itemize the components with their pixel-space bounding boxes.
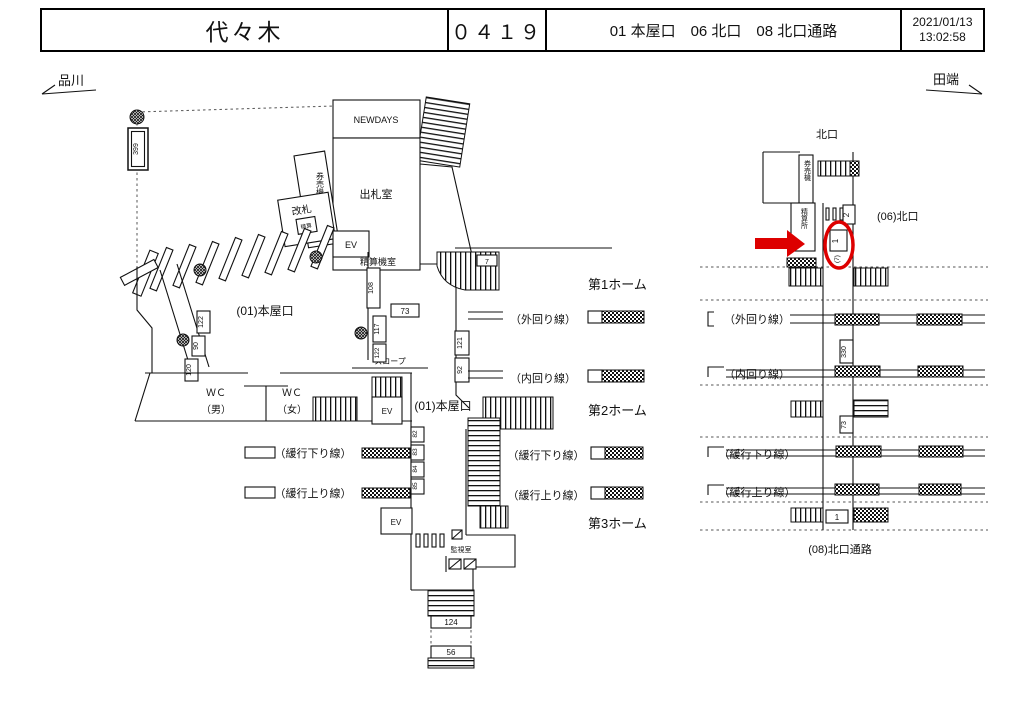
pillar-icon: [194, 264, 206, 276]
stairs-icon: [416, 97, 469, 167]
platform-bar: [836, 446, 881, 457]
pos-1: 1: [831, 238, 840, 243]
direction-right: 田端: [926, 72, 982, 94]
stairs-icon: [428, 590, 474, 616]
platform-bar: [919, 446, 963, 457]
pos-1b: 1: [835, 513, 840, 522]
pillar-icon: [177, 334, 189, 346]
elevator-2-label: EV: [382, 407, 393, 416]
building-right-wall: [420, 164, 474, 264]
platform1-label: 第1ホーム: [588, 277, 647, 292]
stairs-icon: [480, 506, 508, 528]
north-exit-label: 北口: [816, 128, 838, 141]
local-up-label-center: （緩行上り線）: [508, 488, 585, 502]
main-floorplan: 399 NEWDAYS 出札室 精算機室 券売機 改札 精算 EV: [120, 97, 646, 668]
direction-left: 品川: [42, 73, 96, 94]
pos-122b: 122: [374, 347, 381, 358]
rail-stub: [468, 371, 503, 378]
platform-bar: [362, 488, 410, 498]
platform3-label: 第3ホーム: [588, 516, 647, 531]
pos-90: 90: [193, 342, 200, 350]
pos-330: 330: [841, 346, 848, 358]
pos-7: 7: [485, 259, 489, 266]
local-down-label-center: （緩行下り線）: [508, 448, 585, 462]
pos-92: 92: [457, 366, 464, 374]
platform2-label: 第2ホーム: [588, 403, 647, 418]
stairs-icon: [468, 418, 500, 506]
platform-bar: [919, 484, 961, 495]
platform-bar: [917, 314, 962, 325]
pos-82: 82: [412, 430, 419, 438]
pos-84: 84: [412, 465, 419, 473]
local-up-label-west: （緩行上り線）: [275, 486, 352, 500]
ticket-gate-row: [120, 225, 334, 296]
fare-machine-room-label: 精算機室: [360, 256, 396, 267]
platform-bar: [835, 314, 879, 325]
stairs-icon: [854, 400, 888, 417]
local-down-label-west: （緩行下り線）: [275, 446, 352, 460]
stairs-icon: [791, 401, 823, 417]
platform-bar: [918, 366, 963, 377]
shop-label: NEWDAYS: [354, 115, 399, 125]
stairs-icon: [791, 508, 823, 522]
fare-office-label: 精算所: [801, 207, 809, 230]
platform-bar-start: [588, 311, 602, 323]
wc-female-label: ＷＣ: [282, 388, 302, 399]
gate-row-end: [850, 161, 859, 176]
pos-121: 121: [457, 337, 464, 349]
pos-56: 56: [447, 648, 456, 657]
wc-male-label: ＷＣ: [206, 388, 226, 399]
exit-06-label: (06)北口: [877, 210, 919, 223]
stairs-icon: [372, 377, 402, 397]
gate-row-icon: [818, 161, 850, 176]
row-bracket: [708, 312, 714, 326]
pos-85: 85: [412, 482, 419, 490]
platform-bar: [835, 484, 879, 495]
pos-108: 108: [368, 282, 375, 294]
station-map-page: 代々木 ０４１９ 01 本屋口 06 北口 08 北口通路 2021/01/13…: [0, 0, 1024, 724]
outer-line-label: （外回り線）: [510, 312, 576, 326]
wc-walls: [135, 373, 412, 421]
wc-female-sub: （女）: [277, 403, 307, 416]
pos-120: 120: [186, 364, 193, 376]
exit-01-label-center: (01)本屋口: [414, 399, 471, 413]
pos-122a: 122: [198, 316, 205, 328]
stairs-icon: [428, 658, 474, 668]
platform-bar: [835, 366, 880, 377]
inner-line-label-right: （内回り線）: [724, 367, 790, 381]
platform-bar: [605, 447, 643, 459]
rail-stub: [468, 312, 503, 319]
pos-83: 83: [412, 448, 419, 456]
platform-bar-start: [245, 447, 275, 458]
platform-bar-start: [591, 487, 605, 499]
pillar-icon: [130, 110, 144, 124]
pos-73-right: 73: [841, 421, 848, 429]
outer-line-label-right: （外回り線）: [724, 312, 790, 326]
platform-bar-start: [588, 370, 602, 382]
row-bracket: [708, 367, 724, 377]
north-building-walls: [763, 152, 800, 203]
pillar-icon: [310, 251, 322, 263]
gate-ticks: [826, 208, 843, 220]
pos-399: 399: [133, 143, 140, 155]
left-station-label: 品川: [58, 73, 84, 88]
wc-male-sub: （男）: [201, 404, 231, 416]
pos-1-note: (7): [834, 255, 841, 263]
ticket-machines-label-right: 券売機: [804, 159, 812, 182]
pos-117: 117: [374, 323, 381, 334]
platform-bar: [602, 311, 644, 323]
north-gate-diagram: 北口 券売機 精算所 2 1 (7) (06)北口 （外回り線）: [700, 128, 988, 556]
path-dotted: [431, 630, 471, 646]
monitor-room-label: 監視室: [451, 545, 472, 554]
right-station-label: 田端: [933, 72, 959, 87]
pos-124: 124: [444, 618, 458, 627]
elevator-1-label: EV: [345, 240, 357, 250]
stairs-icon: [789, 268, 823, 286]
stairs-icon: [854, 508, 888, 522]
monitor-room-area: 監視室: [416, 530, 476, 572]
platform-bar: [605, 487, 643, 499]
platform-bar: [602, 370, 644, 382]
platform-bar: [362, 448, 410, 458]
exit-08-label: (08)北口通路: [808, 543, 872, 556]
stairs-icon: [313, 397, 357, 421]
station-map-canvas: 品川 田端 399 NEWDAYS 出札室 精算機室 券売機: [0, 0, 1024, 724]
exit-01-label-west: (01)本屋口: [236, 304, 293, 318]
platform-edge: [787, 258, 816, 267]
pillar-icon: [355, 327, 367, 339]
inner-line-label: （内回り線）: [510, 371, 576, 385]
pos-2: 2: [842, 212, 851, 217]
local-down-label-right: （緩行下り線）: [719, 447, 796, 461]
elevator-3-label: EV: [391, 518, 402, 527]
local-up-label-right: （緩行上り線）: [719, 485, 796, 499]
stairs-icon: [854, 268, 888, 286]
platform-bar-start: [245, 487, 275, 498]
pos-73: 73: [401, 307, 410, 316]
ticket-office-label: 出札室: [360, 187, 393, 201]
platform-bar-start: [591, 447, 605, 459]
